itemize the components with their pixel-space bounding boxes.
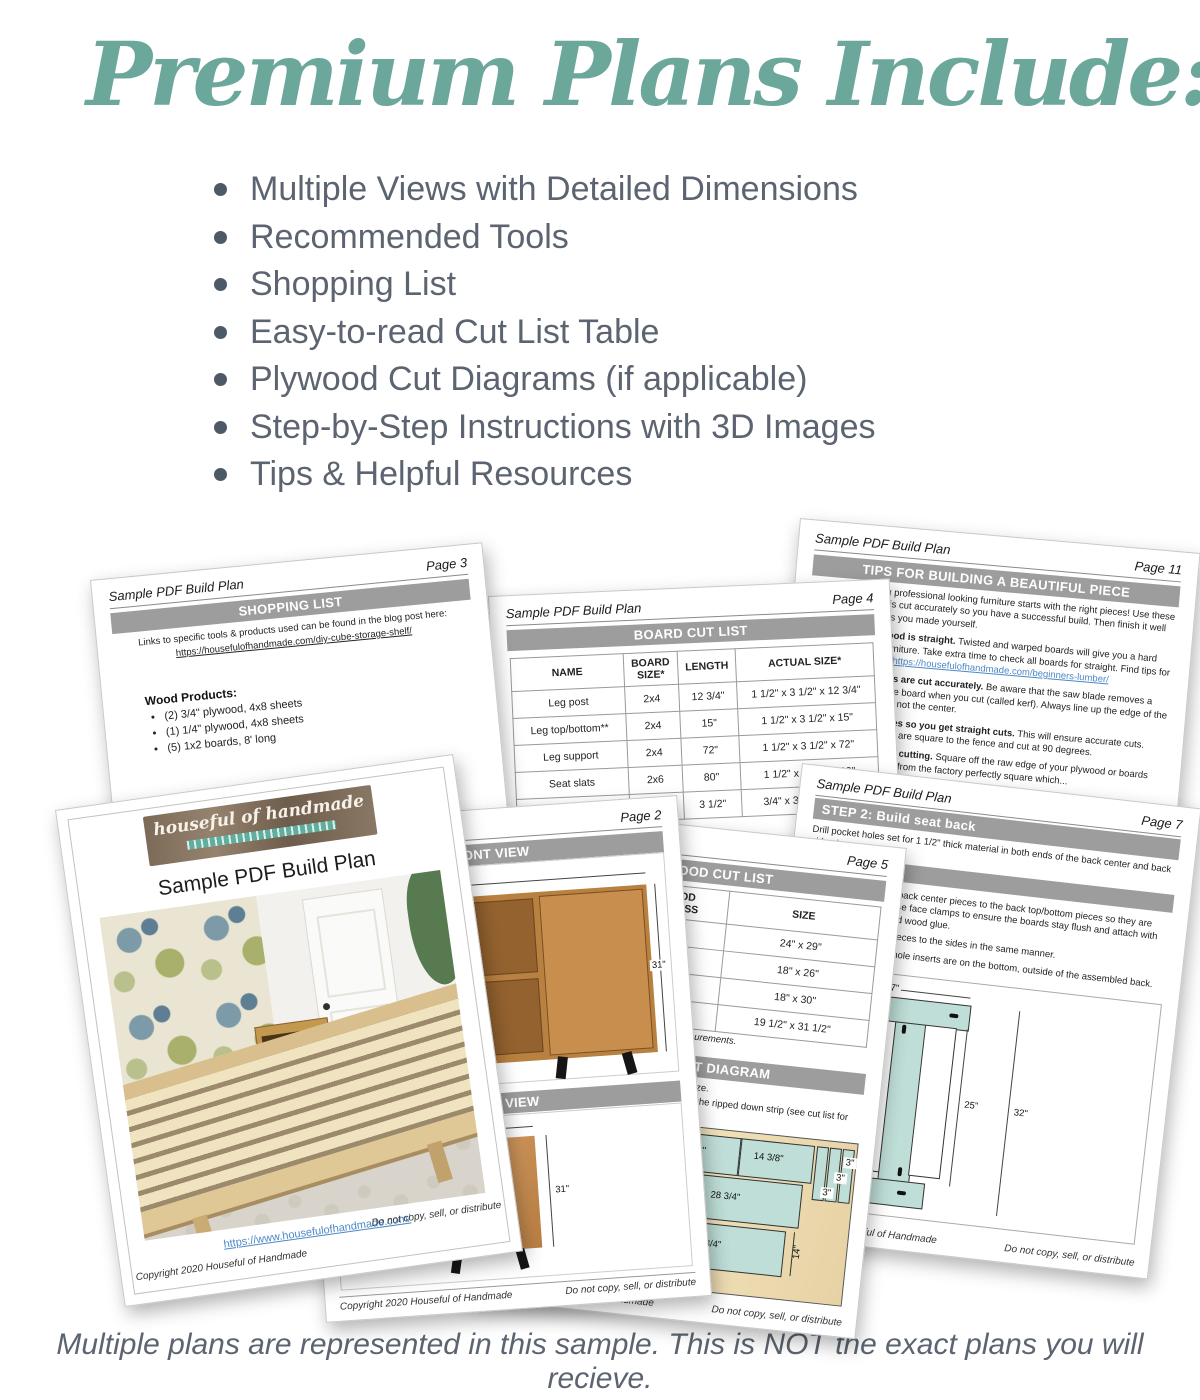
bed-photo (99, 870, 485, 1241)
page-number: Page 7 (1141, 813, 1184, 833)
cabinet-leg (622, 1051, 638, 1075)
dim-label: 3" (833, 1172, 847, 1184)
feature-item: Shopping List (210, 261, 876, 309)
do-not-copy: Do not copy, sell, or distribute (1004, 1243, 1135, 1269)
col-board-size: BOARD SIZE* (623, 651, 679, 686)
dim-label: 28 3/4" (708, 1189, 743, 1203)
dim-label: 14 3/8" (751, 1150, 786, 1164)
bed-leg (427, 1141, 453, 1184)
cell: 15" (680, 709, 739, 739)
col-name: NAME (510, 654, 624, 692)
page-title: Premium Plans Include: (86, 22, 1126, 126)
pocket-hole (949, 1013, 958, 1018)
cell: 2x6 (628, 765, 684, 794)
cell: 12 3/4" (678, 682, 737, 712)
page-number: Page 4 (832, 590, 874, 607)
dim-label-right: 32" (1011, 1107, 1030, 1120)
cell: 2x4 (625, 711, 681, 740)
feature-item: Plywood Cut Diagrams (if applicable) (210, 356, 876, 404)
cell: 2x4 (626, 738, 682, 767)
page-number: Page 11 (1134, 558, 1183, 577)
cut-piece: 14 3/8" (738, 1138, 816, 1184)
feature-item: Recommended Tools (210, 214, 876, 262)
cell: 72" (681, 736, 740, 766)
page-number: Page 3 (425, 555, 467, 574)
doc-title: Sample PDF Build Plan (108, 576, 244, 604)
copyright: Copyright 2020 Houseful of Handmade (340, 1290, 513, 1313)
dim-label: 14" (791, 1243, 804, 1262)
dim-label-front-height: 31" (650, 959, 669, 971)
feature-list: Multiple Views with Detailed Dimensions … (210, 166, 876, 499)
doc-title: Sample PDF Build Plan (505, 600, 641, 621)
page-number: Page 5 (846, 853, 889, 872)
pocket-hole (902, 1025, 907, 1034)
cell: 3 1/2" (683, 790, 742, 820)
cell: 2x4 (624, 684, 680, 713)
cabinet-leg (556, 1056, 568, 1079)
feature-item: Multiple Views with Detailed Dimensions (210, 166, 876, 214)
feature-item: Easy-to-read Cut List Table (210, 309, 876, 357)
dim-label-side-height: 31" (553, 1183, 572, 1195)
feature-item: Tips & Helpful Resources (210, 451, 876, 499)
do-not-copy: Do not copy, sell, or distribute (711, 1304, 842, 1329)
do-not-copy: Do not copy, sell, or distribute (565, 1277, 696, 1297)
dim-label: 3" (820, 1187, 834, 1199)
col-length: LENGTH (677, 649, 736, 685)
disclaimer-text: Multiple plans are represented in this s… (0, 1328, 1200, 1396)
door-knob (322, 1002, 330, 1010)
door-panel (316, 908, 386, 997)
dim-label: 3" (843, 1157, 857, 1169)
pdf-page-cover: houseful of handmade Sample PDF Build Pl… (55, 754, 523, 1307)
cabinet-door (539, 889, 654, 1056)
dim-label-mid: 25" (962, 1099, 981, 1112)
feature-item: Step-by-Step Instructions with 3D Images (210, 404, 876, 452)
cell: 80" (682, 763, 741, 793)
doc-title: Sample PDF Build Plan (815, 530, 951, 557)
page-number: Page 2 (620, 807, 662, 825)
pocket-hole (897, 1191, 906, 1196)
pocket-hole (897, 1167, 902, 1176)
